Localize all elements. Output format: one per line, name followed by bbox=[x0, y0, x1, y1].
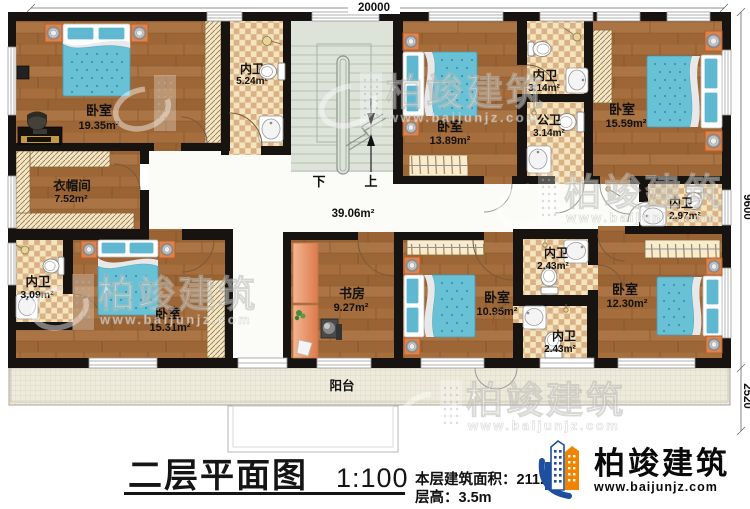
svg-text:10.95m²: 10.95m² bbox=[477, 306, 518, 318]
svg-text:柏竣建筑: 柏竣建筑 bbox=[594, 446, 730, 481]
svg-text:9600: 9600 bbox=[741, 194, 750, 220]
svg-text:2.43m²: 2.43m² bbox=[537, 261, 569, 272]
svg-text:15.59m²: 15.59m² bbox=[606, 118, 647, 130]
svg-text:二层平面图: 二层平面图 bbox=[128, 457, 308, 495]
svg-text:卧室: 卧室 bbox=[609, 102, 635, 117]
svg-text:衣帽间: 衣帽间 bbox=[53, 178, 91, 193]
svg-text:内卫: 内卫 bbox=[25, 274, 51, 289]
svg-text:19.35m²: 19.35m² bbox=[79, 120, 120, 132]
svg-text:7.52m²: 7.52m² bbox=[54, 193, 88, 205]
svg-text:卧室: 卧室 bbox=[612, 282, 638, 297]
svg-text:层高：3.5m: 层高：3.5m bbox=[415, 488, 492, 506]
svg-text:2.43m²: 2.43m² bbox=[544, 344, 576, 355]
svg-text:13.89m²: 13.89m² bbox=[430, 135, 471, 147]
svg-text:20000: 20000 bbox=[358, 2, 390, 14]
svg-text:12.30m²: 12.30m² bbox=[607, 298, 648, 310]
svg-text:1:100: 1:100 bbox=[336, 463, 409, 493]
svg-text:下: 下 bbox=[312, 174, 325, 189]
svg-text:卧室: 卧室 bbox=[484, 290, 510, 305]
svg-text:9.27m²: 9.27m² bbox=[334, 302, 369, 314]
svg-text:2520: 2520 bbox=[741, 383, 750, 409]
svg-text:39.06m²: 39.06m² bbox=[332, 208, 375, 220]
svg-text:阳台: 阳台 bbox=[329, 378, 354, 393]
svg-text:书房: 书房 bbox=[339, 286, 365, 301]
svg-text:卧室: 卧室 bbox=[86, 103, 112, 118]
svg-text:内卫: 内卫 bbox=[552, 328, 576, 343]
svg-text:上: 上 bbox=[364, 174, 377, 189]
svg-text:3.14m²: 3.14m² bbox=[533, 128, 565, 139]
svg-text:内卫: 内卫 bbox=[544, 245, 568, 260]
svg-text:公卫: 公卫 bbox=[537, 113, 561, 127]
svg-text:www.baijunjz.com: www.baijunjz.com bbox=[593, 480, 718, 494]
